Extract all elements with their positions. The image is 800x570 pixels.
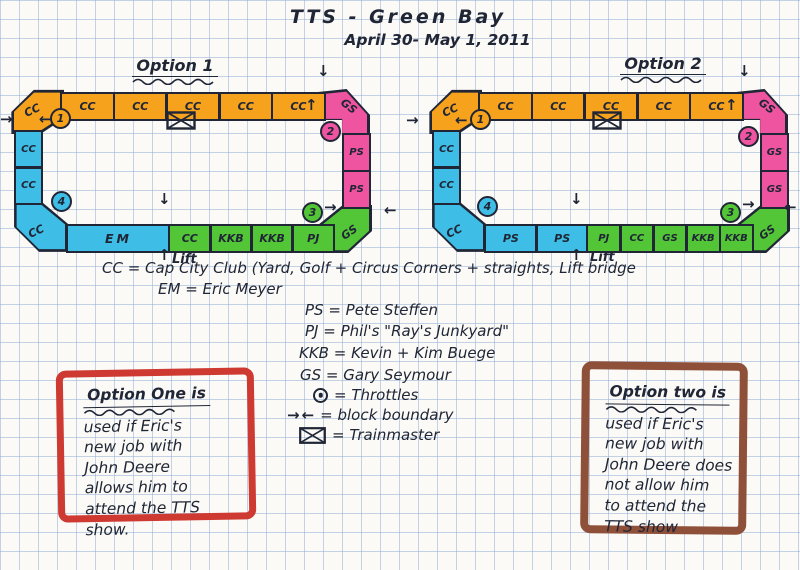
option2-bottom-track-green: PJ CC GS KKB KKB [586, 224, 754, 253]
option1-label-text: Option 1 [132, 56, 217, 77]
throttle-marker-2: 2 [738, 126, 759, 147]
option2-label: Option 2 [620, 54, 706, 83]
marker-number: 3 [309, 206, 317, 219]
throttle-marker-3: 3 [302, 202, 323, 223]
note-heading-text: Option two is [605, 381, 730, 405]
throttle-marker-4: 4 [477, 196, 498, 217]
track-segment: PS [342, 133, 371, 172]
track-segment: KKB [209, 224, 253, 253]
option1-left-track: CC CC [14, 130, 43, 205]
block-boundary-arrow-down-icon: ↓ [317, 64, 330, 79]
throttle-marker-1: 1 [50, 108, 71, 129]
notebook-page: TTS - Green Bay April 30- May 1, 2011 Op… [0, 0, 800, 570]
block-boundary-arrow-up-icon: ↑ [725, 98, 738, 113]
option2-label-text: Option 2 [620, 54, 705, 75]
option-one-note-box: Option One is used if Eric's new job wit… [56, 367, 257, 522]
block-boundary-arrow-up-icon: ↑ [305, 98, 318, 113]
track-segment: CC [14, 166, 43, 205]
track-segment: CC [432, 130, 461, 169]
note-line: allows him to [85, 476, 243, 499]
page-subtitle: April 30- May 1, 2011 [330, 31, 545, 49]
note-line: attend the TTS [85, 497, 243, 520]
throttle-marker-2: 2 [320, 121, 341, 142]
legend-trainmaster: = Trainmaster [299, 426, 439, 444]
legend-pj: PJ = Phil's "Ray's Junkyard" [305, 322, 509, 340]
note-line: to attend the [604, 495, 732, 517]
throttle-icon [313, 388, 328, 403]
legend-trainmaster-text: = Trainmaster [332, 426, 439, 444]
note-line: TTS show [604, 516, 732, 538]
note-line: John Deere [84, 455, 242, 478]
trainmaster-icon [299, 427, 326, 444]
track-segment: PJ [586, 224, 622, 253]
squiggle-underline-icon [605, 405, 701, 413]
block-boundary-arrow-down-icon: ↓ [158, 192, 171, 207]
squiggle-underline-icon [132, 78, 218, 85]
option1-label: Option 1 [132, 56, 218, 85]
legend-block-boundary: →← = block boundary [287, 406, 454, 424]
track-segment: CC [432, 166, 461, 205]
marker-number: 3 [727, 206, 735, 219]
option1-right-track: PS PS [342, 133, 371, 209]
legend-block-boundary-text: = block boundary [320, 406, 453, 424]
track-segment: EM [66, 224, 171, 253]
option2-track-diagram: Option 2 CC GS GS CC CC CC CC CC [420, 56, 800, 274]
block-boundary-arrow-left-icon: ← [302, 406, 315, 424]
block-boundary-arrow-left-icon: ← [784, 200, 797, 215]
block-boundary-arrow-right-icon: → [742, 197, 755, 212]
track-segment: PS [484, 224, 538, 253]
squiggle-underline-icon [620, 76, 706, 83]
block-boundary-arrow-right-icon: → [324, 200, 337, 215]
legend-ps: PS = Pete Steffen [305, 301, 438, 319]
block-boundary-arrow-right-icon: → [287, 406, 300, 424]
marker-number: 1 [477, 113, 485, 126]
track-segment: CC [14, 130, 43, 169]
note-heading: Option One is [83, 383, 210, 416]
track-segment: KKB [719, 224, 755, 253]
track-segment: CC [636, 92, 691, 121]
track-segment: GS [760, 133, 789, 172]
marker-number: 4 [484, 200, 492, 213]
trainmaster-icon [166, 111, 196, 130]
legend-throttles-text: = Throttles [334, 386, 418, 404]
legend-kkb: KKB = Kevin + Kim Buege [299, 344, 495, 362]
track-segment: PS [342, 170, 371, 209]
note-line: show. [85, 517, 243, 540]
marker-number: 2 [745, 130, 753, 143]
legend-gs: GS = Gary Seymour [300, 366, 451, 384]
squiggle-underline-icon [83, 407, 179, 416]
block-boundary-arrow-right-icon: → [0, 112, 13, 127]
marker-number: 4 [58, 195, 66, 208]
note-line: new job with [605, 434, 733, 456]
option1-bottom-track-blue: EM [66, 224, 171, 253]
throttle-marker-4: 4 [51, 191, 72, 212]
note-line: not allow him [605, 475, 733, 497]
block-boundary-arrow-left-icon: ← [384, 203, 397, 218]
note-line: new job with [84, 435, 242, 458]
option1-track-diagram: Option 1 CC GS GS CC CC CC CC [6, 56, 406, 274]
page-title: TTS - Green Bay [288, 6, 508, 28]
option-two-note-box: Option two is used if Eric's new job wit… [580, 361, 748, 535]
track-segment: CC [619, 224, 655, 253]
throttle-marker-3: 3 [720, 202, 741, 223]
trainmaster-icon [592, 111, 622, 130]
note-line: John Deere does [605, 454, 733, 476]
legend-cc: CC = Cap City Club (Yard, Golf + Circus … [102, 259, 636, 277]
block-boundary-arrow-down-icon: ↓ [570, 192, 583, 207]
track-segment: KKB [250, 224, 294, 253]
block-boundary-arrow-left-icon: ← [455, 113, 468, 128]
block-boundary-arrow-left-icon: ← [39, 112, 52, 127]
track-segment: GS [652, 224, 688, 253]
option1-bottom-track-green: CC KKB KKB PJ [168, 224, 335, 253]
legend-throttles: = Throttles [313, 386, 418, 404]
note-line: used if Eric's [605, 413, 733, 435]
track-segment: CC [168, 224, 212, 253]
track-segment: CC [113, 92, 168, 121]
block-boundary-arrow-right-icon: → [406, 113, 419, 128]
marker-number: 2 [327, 125, 335, 138]
track-segment: PJ [291, 224, 335, 253]
track-segment: CC [218, 92, 273, 121]
throttle-marker-1: 1 [470, 109, 491, 130]
note-heading: Option two is [605, 381, 730, 413]
note-line: used if Eric's [83, 414, 241, 437]
track-segment: CC [271, 92, 326, 121]
block-boundary-arrow-down-icon: ↓ [738, 64, 751, 79]
track-segment: CC [531, 92, 586, 121]
track-segment: KKB [685, 224, 721, 253]
marker-number: 1 [57, 112, 65, 125]
legend-em: EM = Eric Meyer [158, 280, 282, 298]
option2-left-track: CC CC [432, 130, 461, 205]
note-heading-text: Option One is [83, 383, 210, 408]
